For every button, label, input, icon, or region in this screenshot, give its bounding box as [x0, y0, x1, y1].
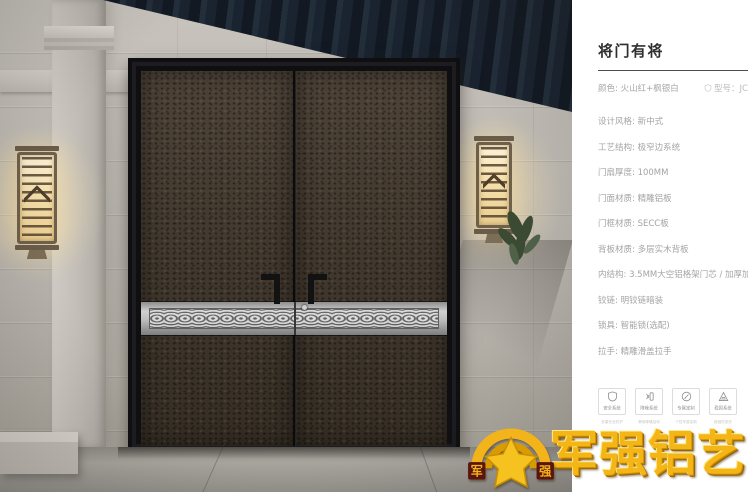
- feature-box: 降噪系统: [635, 388, 663, 415]
- door-leaf-right: [295, 71, 448, 446]
- brand-emblem: 军 强: [464, 417, 558, 491]
- emblem-char-right: 强: [539, 464, 552, 478]
- feature-label: 稳固系统: [714, 404, 731, 410]
- door-leaves: [141, 71, 447, 446]
- column-capital: [44, 26, 114, 38]
- spec-row: 设计风格: 新中式: [598, 115, 748, 127]
- shield-icon: [704, 84, 712, 92]
- feature-label: 降噪系统: [640, 404, 657, 410]
- spec-row: 拉手: 精雕滑盖拉手: [598, 345, 748, 357]
- spec-row: 内结构: 3.5MM大空铝格架门芯 / 加厚加密航空铝扣条: [598, 268, 748, 280]
- spec-row: 锁具: 智能锁(选配): [598, 319, 748, 331]
- stone-step: [0, 432, 78, 474]
- spec-row: 背板材质: 多层实木背板: [598, 243, 748, 255]
- model-label: 型号：JC: [714, 82, 748, 94]
- spec-row: 铰链: 明铰链暗装: [598, 294, 748, 306]
- title-divider: [598, 70, 748, 71]
- feature-box: 安全系统: [598, 388, 626, 415]
- emblem-char-left: 军: [471, 463, 483, 478]
- wall-lantern-left: [17, 152, 57, 244]
- feature-label: 安全系统: [603, 404, 620, 410]
- spec-row: 门面材质: 精雕铝板: [598, 192, 748, 204]
- shield-icon: [607, 391, 618, 402]
- feature-box: 专属定制: [672, 388, 700, 415]
- spec-list: 设计风格: 新中式工艺结构: 极窄边系统门扇厚度: 100MM门面材质: 精雕铝…: [598, 115, 748, 357]
- plant: [486, 196, 546, 276]
- double-entry-door: [128, 58, 460, 452]
- star-icon: [485, 438, 536, 487]
- lantern-cap: [474, 136, 514, 141]
- door-leaf-left: [141, 71, 295, 446]
- product-sheet: 将门有将 颜色: 火山红+枫银白 型号：JC 设计风格: 新中式工艺结构: 极窄…: [0, 0, 748, 492]
- triangle-icon: [718, 391, 729, 402]
- door-handle-left: [274, 274, 280, 304]
- feature-label: 专属定制: [677, 404, 694, 410]
- spec-row: 工艺结构: 极窄边系统: [598, 141, 748, 153]
- sound-icon: [644, 391, 655, 402]
- door-handle-right: [308, 274, 314, 304]
- carved-silver-band: [141, 302, 447, 335]
- spec-row: 门扇厚度: 100MM: [598, 166, 748, 178]
- brand-logo: 军 强 军强铝艺: [464, 416, 746, 492]
- lantern-cap: [15, 146, 59, 151]
- brand-name: 军强铝艺: [550, 430, 746, 478]
- door-knob: [302, 305, 307, 310]
- pen-icon: [681, 391, 692, 402]
- model-badge: 型号：JC: [704, 82, 748, 94]
- lantern-cap: [15, 245, 59, 250]
- feature-box: 稳固系统: [709, 388, 737, 415]
- spec-row: 门框材质: SECC板: [598, 217, 748, 229]
- color-label: 颜色: 火山红+枫银白: [598, 82, 679, 94]
- lantern-bracket: [27, 250, 47, 259]
- product-title: 将门有将: [598, 40, 748, 61]
- door-shadow: [118, 447, 470, 459]
